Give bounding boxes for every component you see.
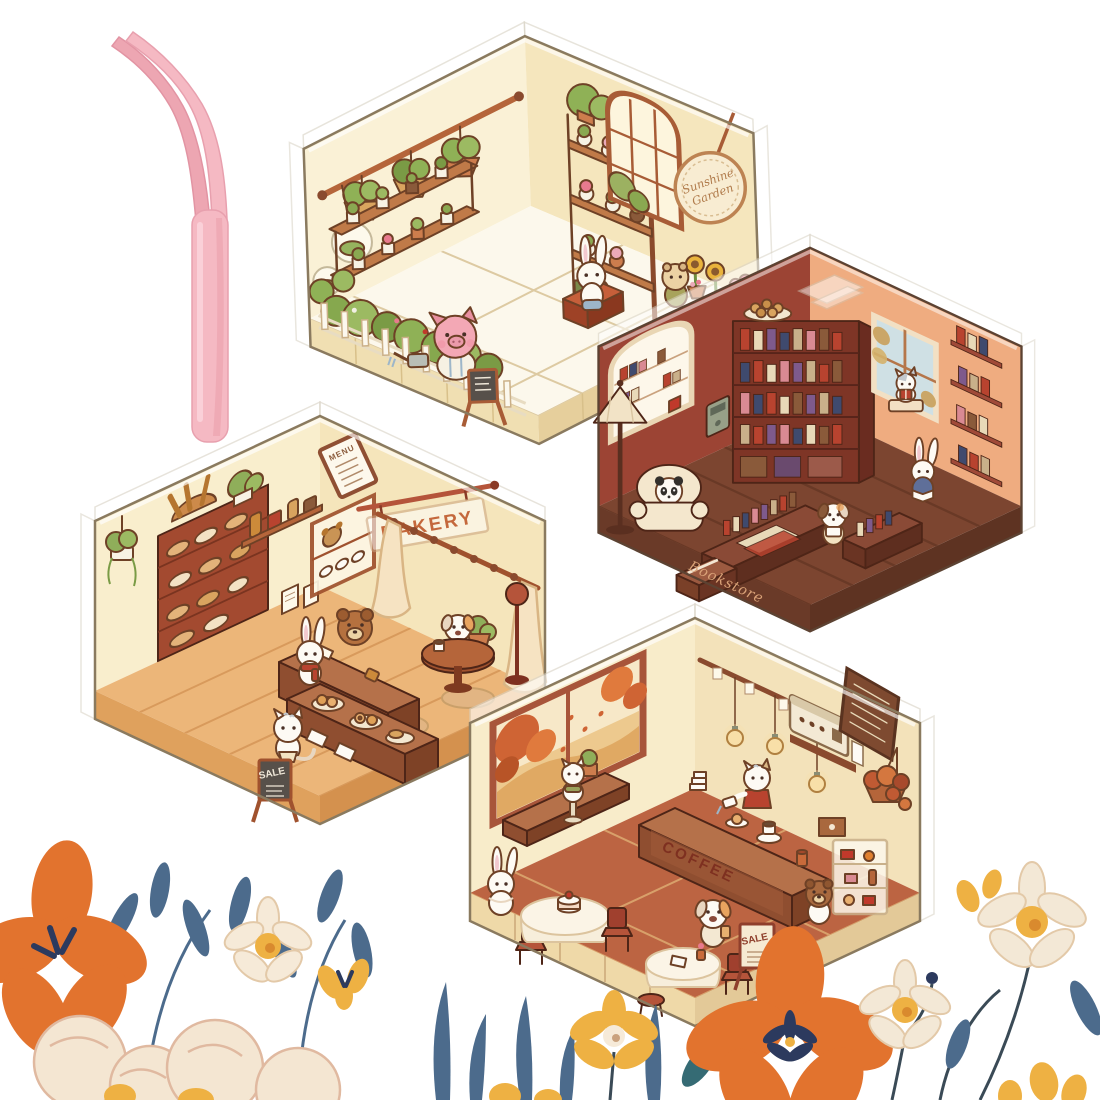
tweezers-tool xyxy=(92,22,262,452)
flower-border xyxy=(0,800,1100,1100)
product-collage: Sunshine Garden xyxy=(0,0,1100,1100)
cream-peonies xyxy=(34,1016,340,1100)
tweezers-handle xyxy=(192,210,228,442)
panda-armchair xyxy=(630,465,709,531)
tweezers-arms xyxy=(112,32,227,222)
baker-bear-character xyxy=(337,609,373,645)
grass-blades-middle xyxy=(434,982,662,1100)
blue-leaves-right xyxy=(941,977,1100,1072)
bud-dot xyxy=(926,972,938,984)
